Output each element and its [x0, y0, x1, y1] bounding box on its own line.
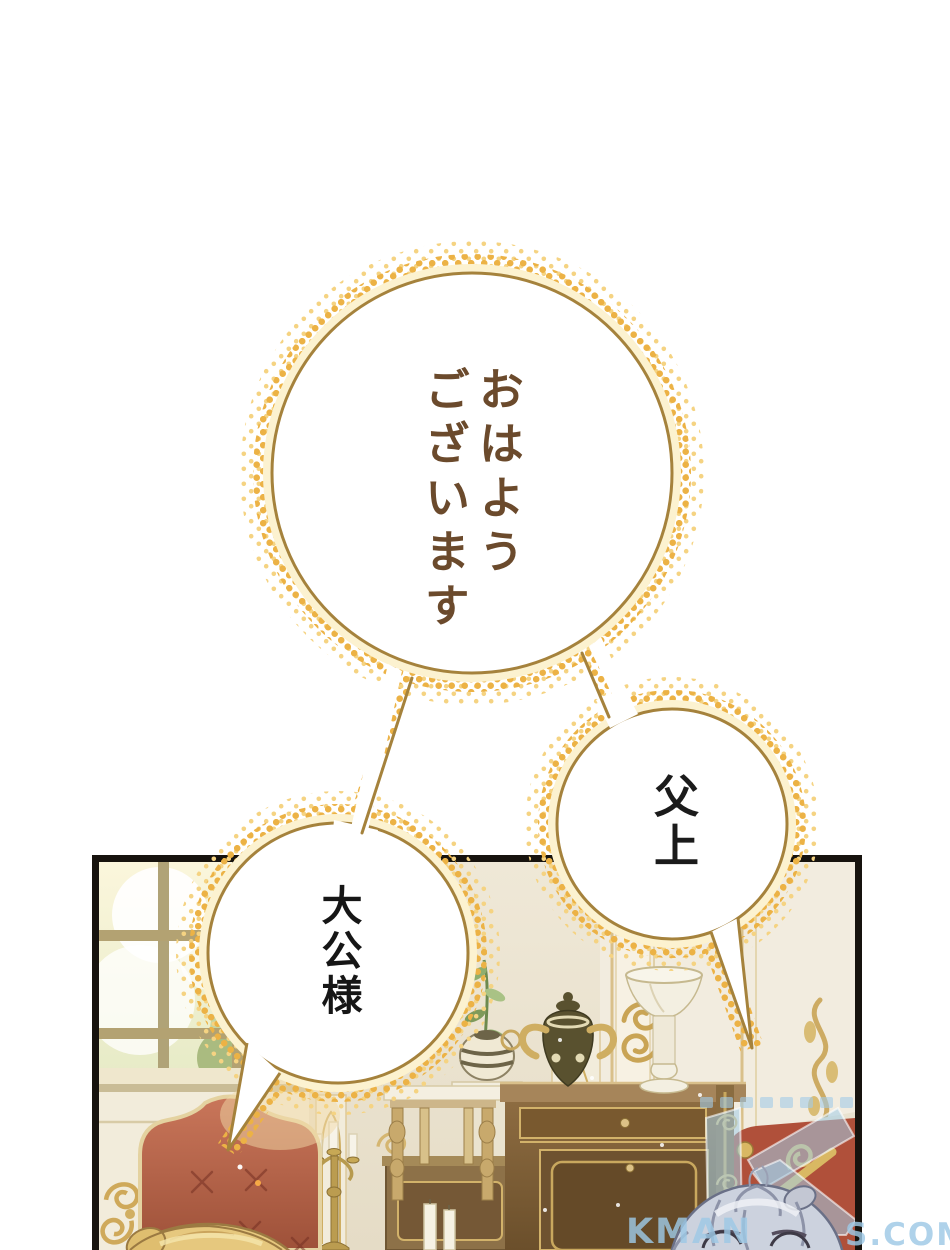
sparkle: [255, 1180, 261, 1186]
drawer-knob: [621, 1119, 630, 1128]
duke-text: 大公様: [315, 884, 361, 1064]
greeting-line-2: ございます: [416, 366, 470, 676]
commode-drawer: [520, 1108, 706, 1138]
father-text: 父上: [647, 773, 697, 933]
greeting-line-1: おはよう: [470, 366, 524, 676]
watermark-fragment-left: KMAN: [626, 1212, 752, 1250]
manga-page: おはよう ございます 父上 大公様 KMAN S.COM: [0, 0, 950, 1250]
greeting-text: おはよう ございます: [416, 366, 524, 676]
watermark-fragment-right: S.COM: [845, 1217, 950, 1250]
sparkle: [238, 1165, 243, 1170]
